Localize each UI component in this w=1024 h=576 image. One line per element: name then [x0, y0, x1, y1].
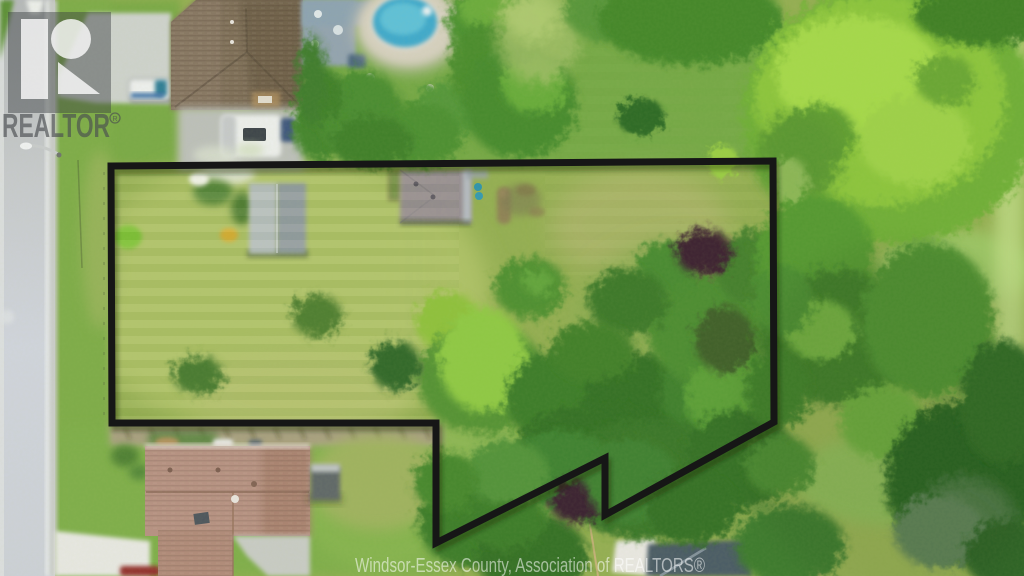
- svg-text:Windsor-Essex County, Associat: Windsor-Essex County, Association of REA…: [355, 555, 705, 576]
- svg-text:R: R: [113, 116, 118, 123]
- svg-text:REALTOR: REALTOR: [2, 107, 110, 144]
